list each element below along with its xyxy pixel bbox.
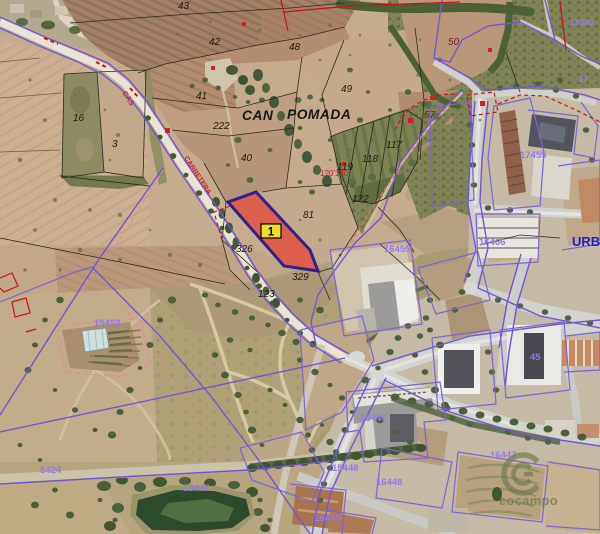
svg-text:48: 48	[289, 42, 301, 53]
svg-text:45: 45	[530, 352, 541, 363]
svg-text:URB: URB	[572, 234, 600, 249]
svg-text:57: 57	[424, 110, 436, 121]
svg-text:17309: 17309	[570, 17, 594, 27]
svg-text:117: 117	[386, 140, 402, 151]
svg-text:16: 16	[73, 113, 85, 124]
svg-text:POMADA: POMADA	[287, 107, 351, 122]
svg-text:3: 3	[112, 139, 118, 150]
svg-text:41: 41	[196, 91, 207, 102]
svg-text:49: 49	[341, 84, 353, 95]
svg-text:16466: 16466	[479, 237, 505, 248]
svg-text:15453: 15453	[94, 318, 120, 329]
svg-text:CAN: CAN	[242, 108, 274, 123]
svg-text:1: 1	[268, 227, 275, 239]
svg-text:16440: 16440	[314, 513, 340, 524]
svg-text:329: 329	[292, 272, 309, 283]
svg-text:16448: 16448	[376, 477, 402, 488]
svg-text:222: 222	[212, 121, 230, 132]
svg-text:81: 81	[303, 210, 314, 221]
svg-text:40: 40	[241, 153, 253, 164]
svg-text:43: 43	[178, 1, 190, 12]
svg-text:16455: 16455	[384, 244, 411, 255]
svg-text:15446: 15446	[360, 413, 386, 424]
svg-text:123: 123	[258, 289, 275, 300]
svg-text:13447: 13447	[183, 483, 209, 494]
svg-text:326: 326	[236, 244, 253, 255]
svg-text:1?0′120: 1?0′120	[320, 169, 349, 178]
svg-text:118: 118	[362, 154, 378, 165]
svg-text:cocampo: cocampo	[499, 493, 558, 508]
svg-text:122: 122	[352, 194, 369, 205]
svg-text:50: 50	[448, 37, 460, 48]
svg-text:17455: 17455	[520, 150, 547, 161]
svg-text:15448: 15448	[332, 463, 358, 474]
svg-text:17...: 17...	[578, 74, 597, 85]
svg-text:42: 42	[209, 37, 221, 48]
svg-text:5424: 5424	[40, 465, 62, 476]
